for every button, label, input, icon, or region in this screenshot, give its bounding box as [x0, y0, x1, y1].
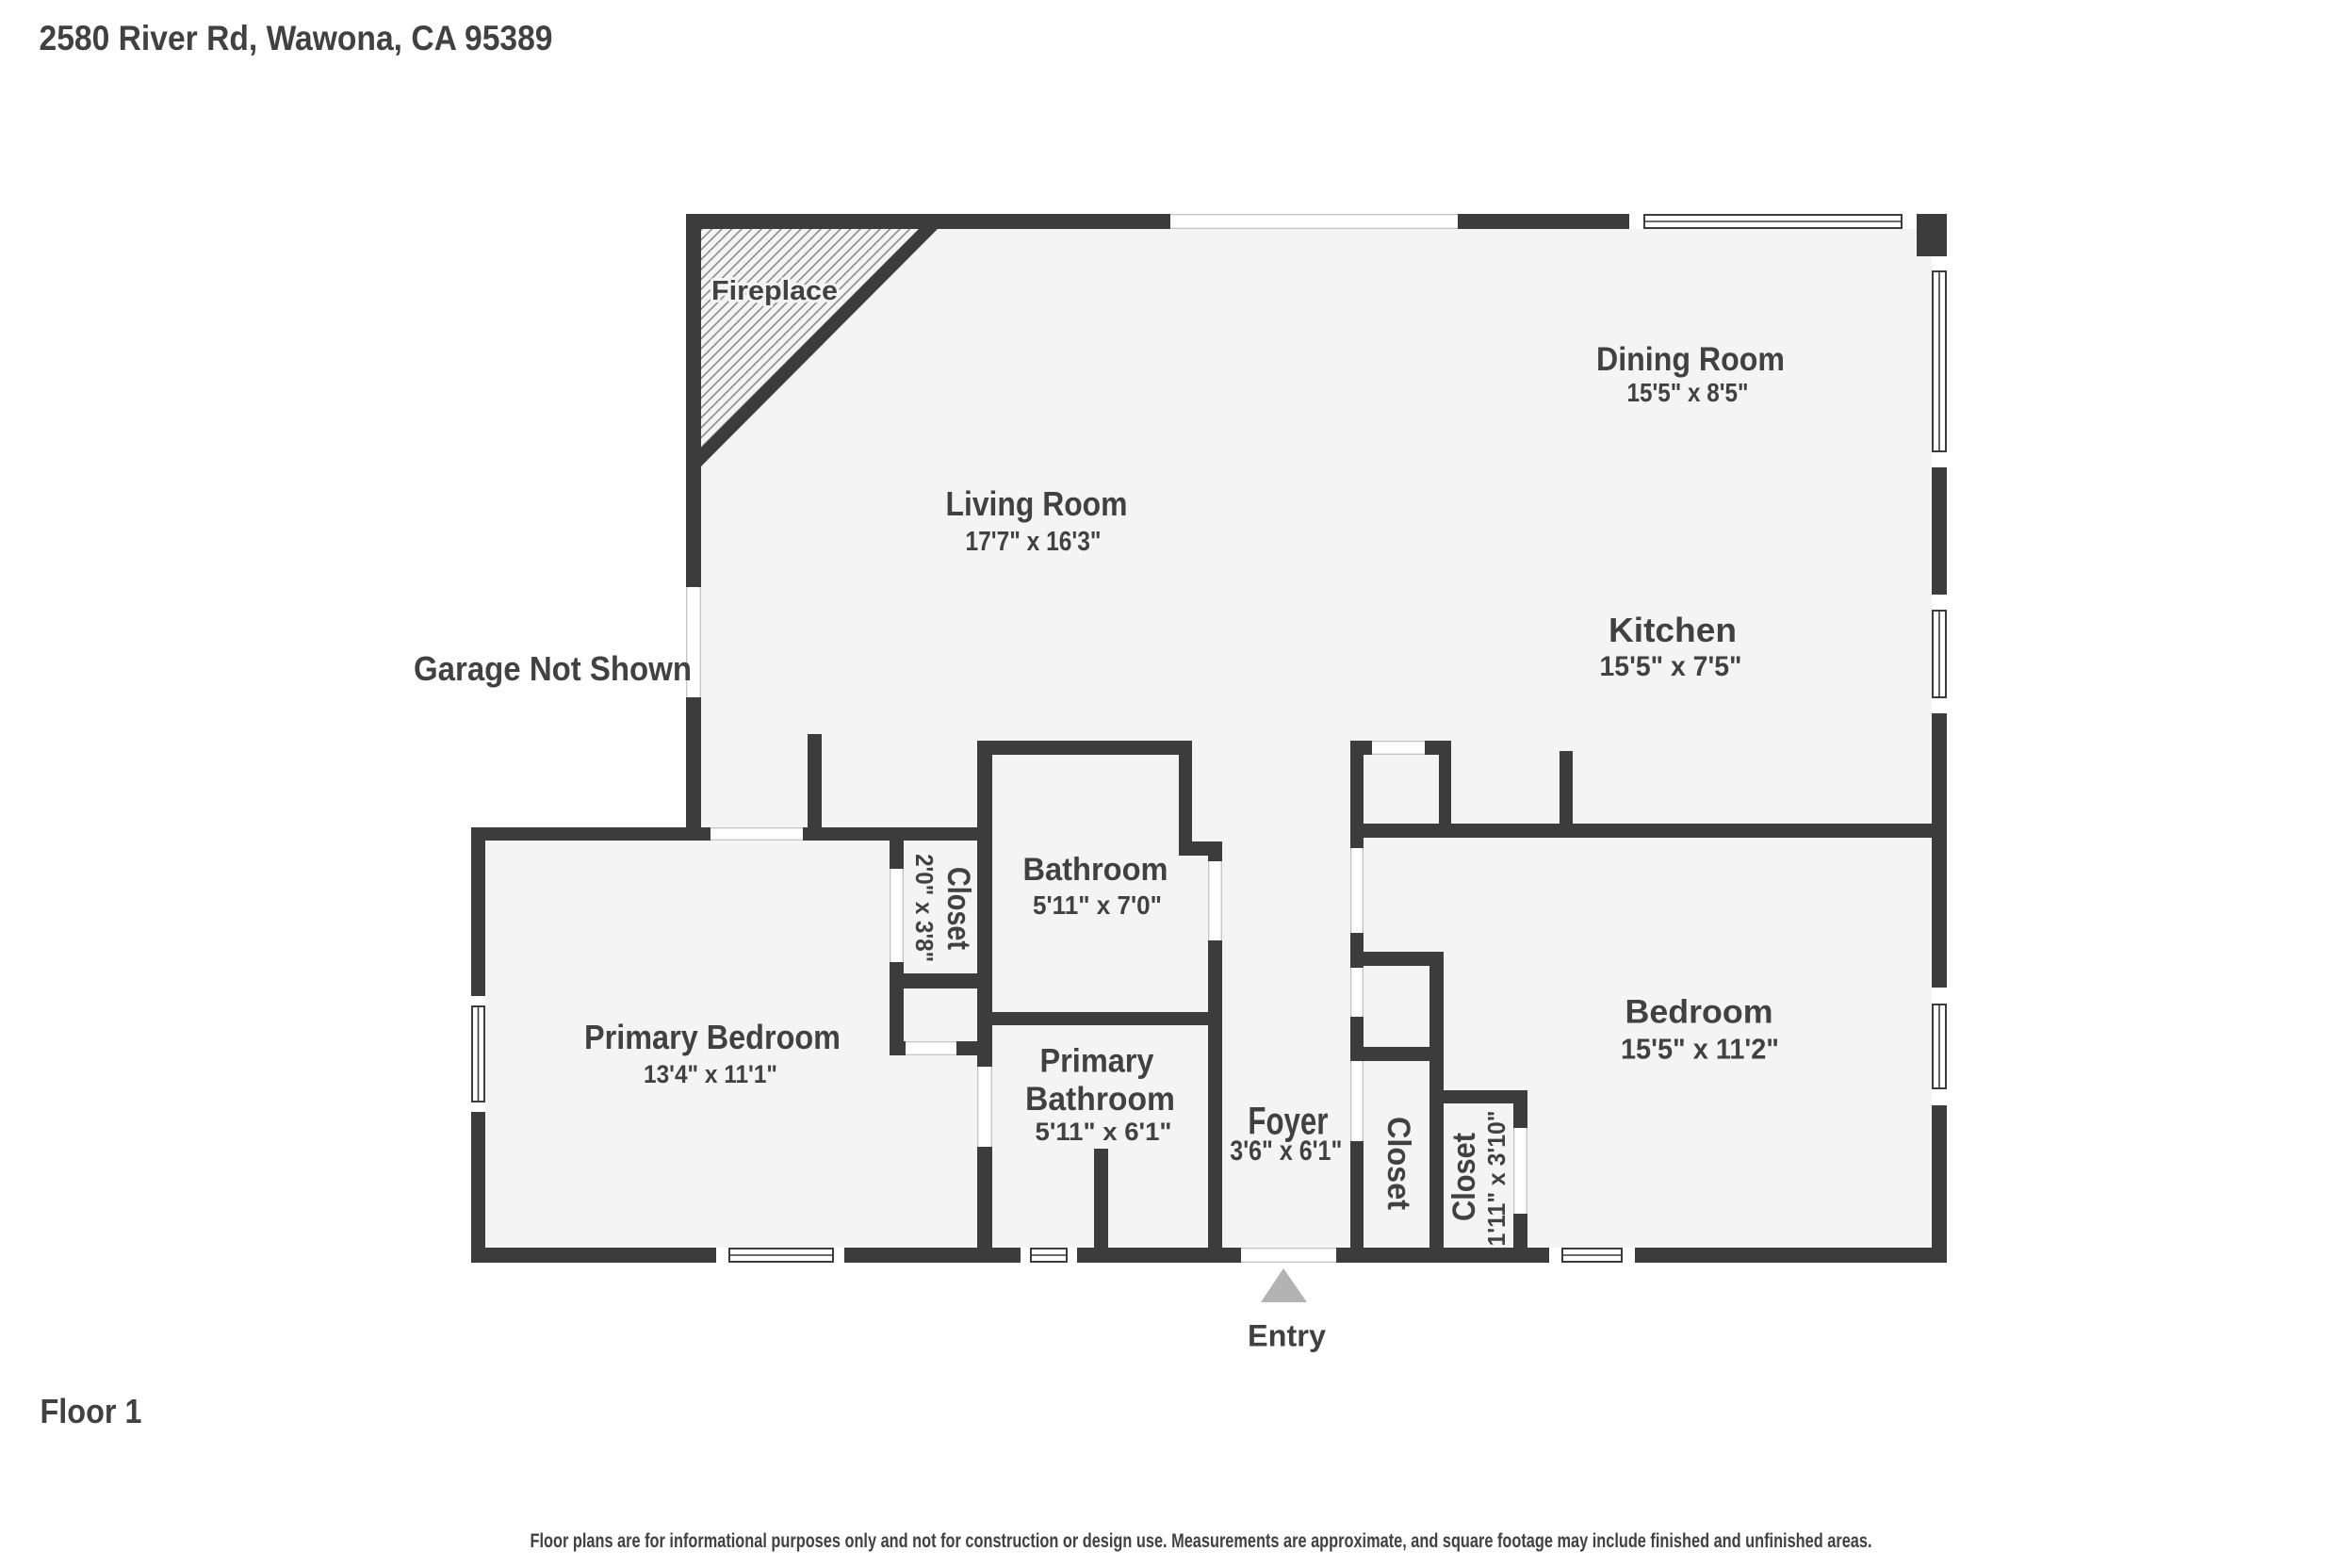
svg-text:17'7" x 16'3": 17'7" x 16'3" [966, 527, 1102, 557]
svg-text:Closet: Closet [940, 867, 976, 950]
svg-text:Floor plans are for informatio: Floor plans are for informational purpos… [531, 1530, 1872, 1552]
svg-text:5'11" x 7'0": 5'11" x 7'0" [1033, 890, 1162, 920]
svg-text:15'5" x 8'5": 15'5" x 8'5" [1627, 378, 1749, 407]
svg-text:Primary: Primary [1040, 1043, 1154, 1080]
svg-text:3'6" x 6'1": 3'6" x 6'1" [1230, 1135, 1342, 1167]
svg-text:2'0" x 3'8": 2'0" x 3'8" [910, 854, 939, 962]
svg-text:1'11" x 3'10": 1'11" x 3'10" [1482, 1111, 1511, 1247]
svg-text:Bathroom: Bathroom [1025, 1081, 1175, 1118]
svg-text:Living Room: Living Room [946, 484, 1128, 523]
svg-text:Entry: Entry [1248, 1319, 1326, 1353]
svg-text:Bathroom: Bathroom [1023, 852, 1168, 888]
svg-text:15'5" x 11'2": 15'5" x 11'2" [1621, 1033, 1779, 1066]
svg-text:Bedroom: Bedroom [1625, 994, 1773, 1031]
svg-text:13'4" x 11'1": 13'4" x 11'1" [644, 1060, 777, 1088]
svg-text:15'5" x 7'5": 15'5" x 7'5" [1600, 651, 1742, 682]
svg-text:Closet: Closet [1380, 1117, 1416, 1210]
svg-text:Dining Room: Dining Room [1596, 341, 1785, 378]
svg-text:Floor 1: Floor 1 [41, 1392, 142, 1430]
svg-text:5'11" x 6'1": 5'11" x 6'1" [1036, 1118, 1172, 1146]
svg-text:Kitchen: Kitchen [1609, 611, 1737, 649]
svg-text:Fireplace: Fireplace [711, 276, 838, 306]
svg-text:Garage Not Shown: Garage Not Shown [414, 649, 692, 688]
svg-text:2580 River Rd, Wawona, CA 9538: 2580 River Rd, Wawona, CA 95389 [40, 19, 553, 57]
svg-text:Closet: Closet [1446, 1133, 1482, 1221]
svg-text:Primary Bedroom: Primary Bedroom [584, 1018, 841, 1056]
